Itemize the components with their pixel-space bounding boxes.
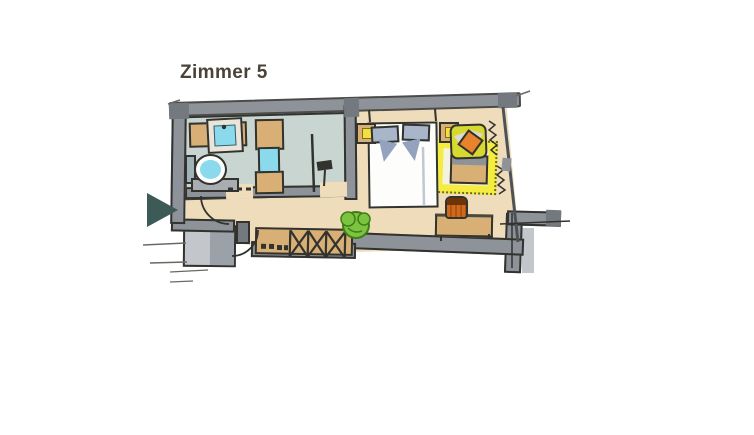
shower-door-opening <box>320 182 347 197</box>
toilet-bowl <box>200 160 221 179</box>
top-wall-cap-left <box>169 103 189 120</box>
partition-shelf-bottom <box>255 171 284 195</box>
wardrobe <box>255 227 353 256</box>
sink <box>206 117 244 154</box>
partition-mirror <box>258 147 280 173</box>
sink-basin <box>213 124 236 146</box>
room-title: Zimmer 5 <box>180 62 268 84</box>
bedroom-floor <box>0 0 754 435</box>
top-wall-cap-right <box>498 93 517 109</box>
armchair <box>449 123 487 159</box>
exterior-wall-right-cap <box>546 210 561 226</box>
top-wall-tab-mid <box>344 98 360 117</box>
vestibule-shading <box>209 227 234 265</box>
floorplan-canvas: Zimmer 5 <box>0 0 754 435</box>
entry-door-post <box>236 221 250 244</box>
exterior-wall-light-strip <box>522 228 534 273</box>
stool-top <box>447 198 466 205</box>
pillow-right <box>402 124 431 142</box>
stool <box>445 196 468 219</box>
partition-shelf-top <box>255 119 285 151</box>
entrance-arrow-icon <box>147 193 178 227</box>
toilet <box>194 154 227 185</box>
